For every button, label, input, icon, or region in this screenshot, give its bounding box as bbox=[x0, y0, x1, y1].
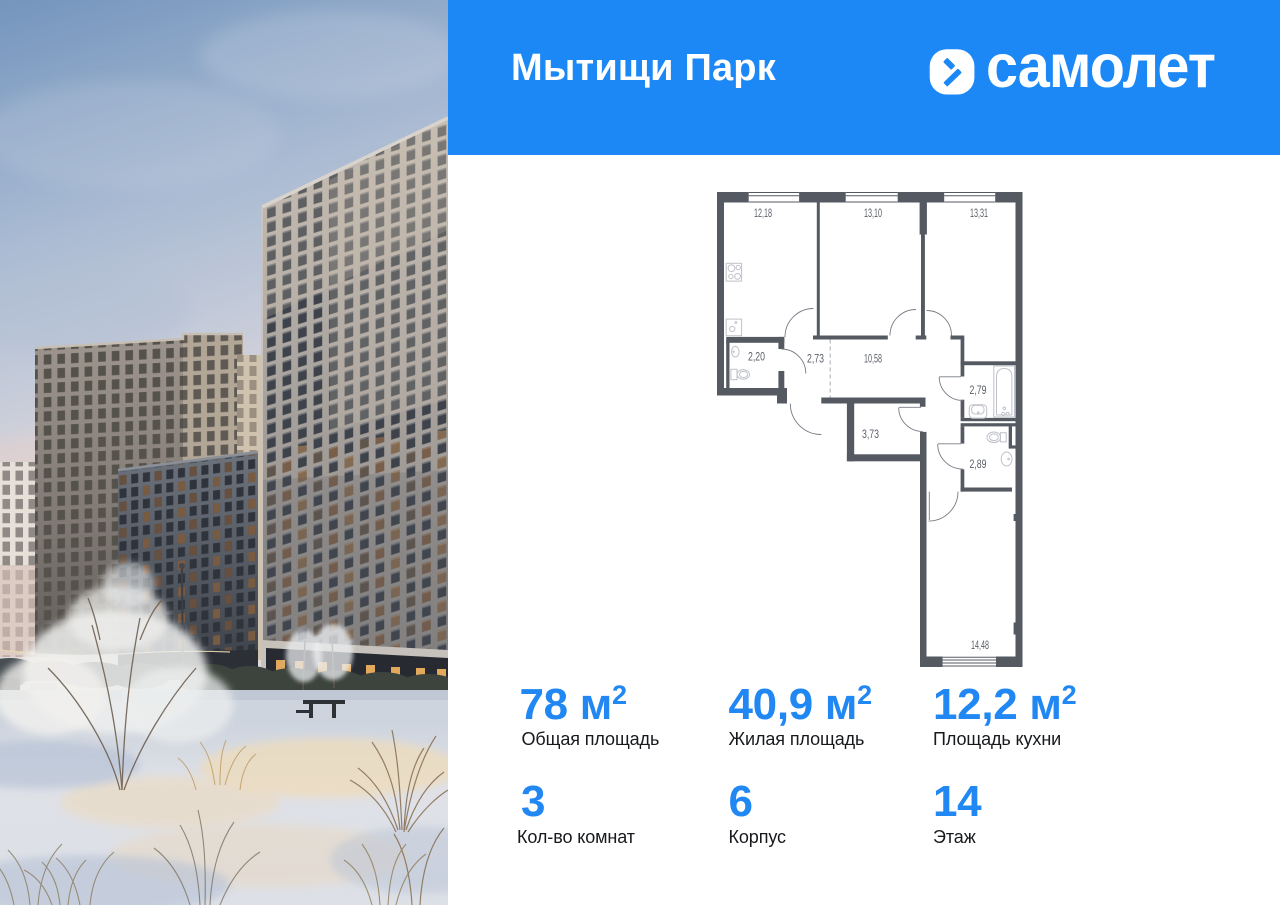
svg-text:12,18: 12,18 bbox=[754, 206, 772, 220]
svg-text:2,89: 2,89 bbox=[970, 457, 987, 471]
svg-text:10,58: 10,58 bbox=[864, 352, 882, 366]
svg-text:2,20: 2,20 bbox=[748, 350, 765, 364]
svg-text:самолет: самолет bbox=[986, 40, 1215, 100]
svg-text:3,73: 3,73 bbox=[862, 427, 879, 441]
svg-text:14,48: 14,48 bbox=[971, 638, 989, 652]
svg-text:2,79: 2,79 bbox=[970, 383, 987, 397]
svg-text:13,10: 13,10 bbox=[864, 206, 882, 220]
svg-text:13,31: 13,31 bbox=[970, 206, 988, 220]
svg-text:2,73: 2,73 bbox=[807, 352, 824, 366]
